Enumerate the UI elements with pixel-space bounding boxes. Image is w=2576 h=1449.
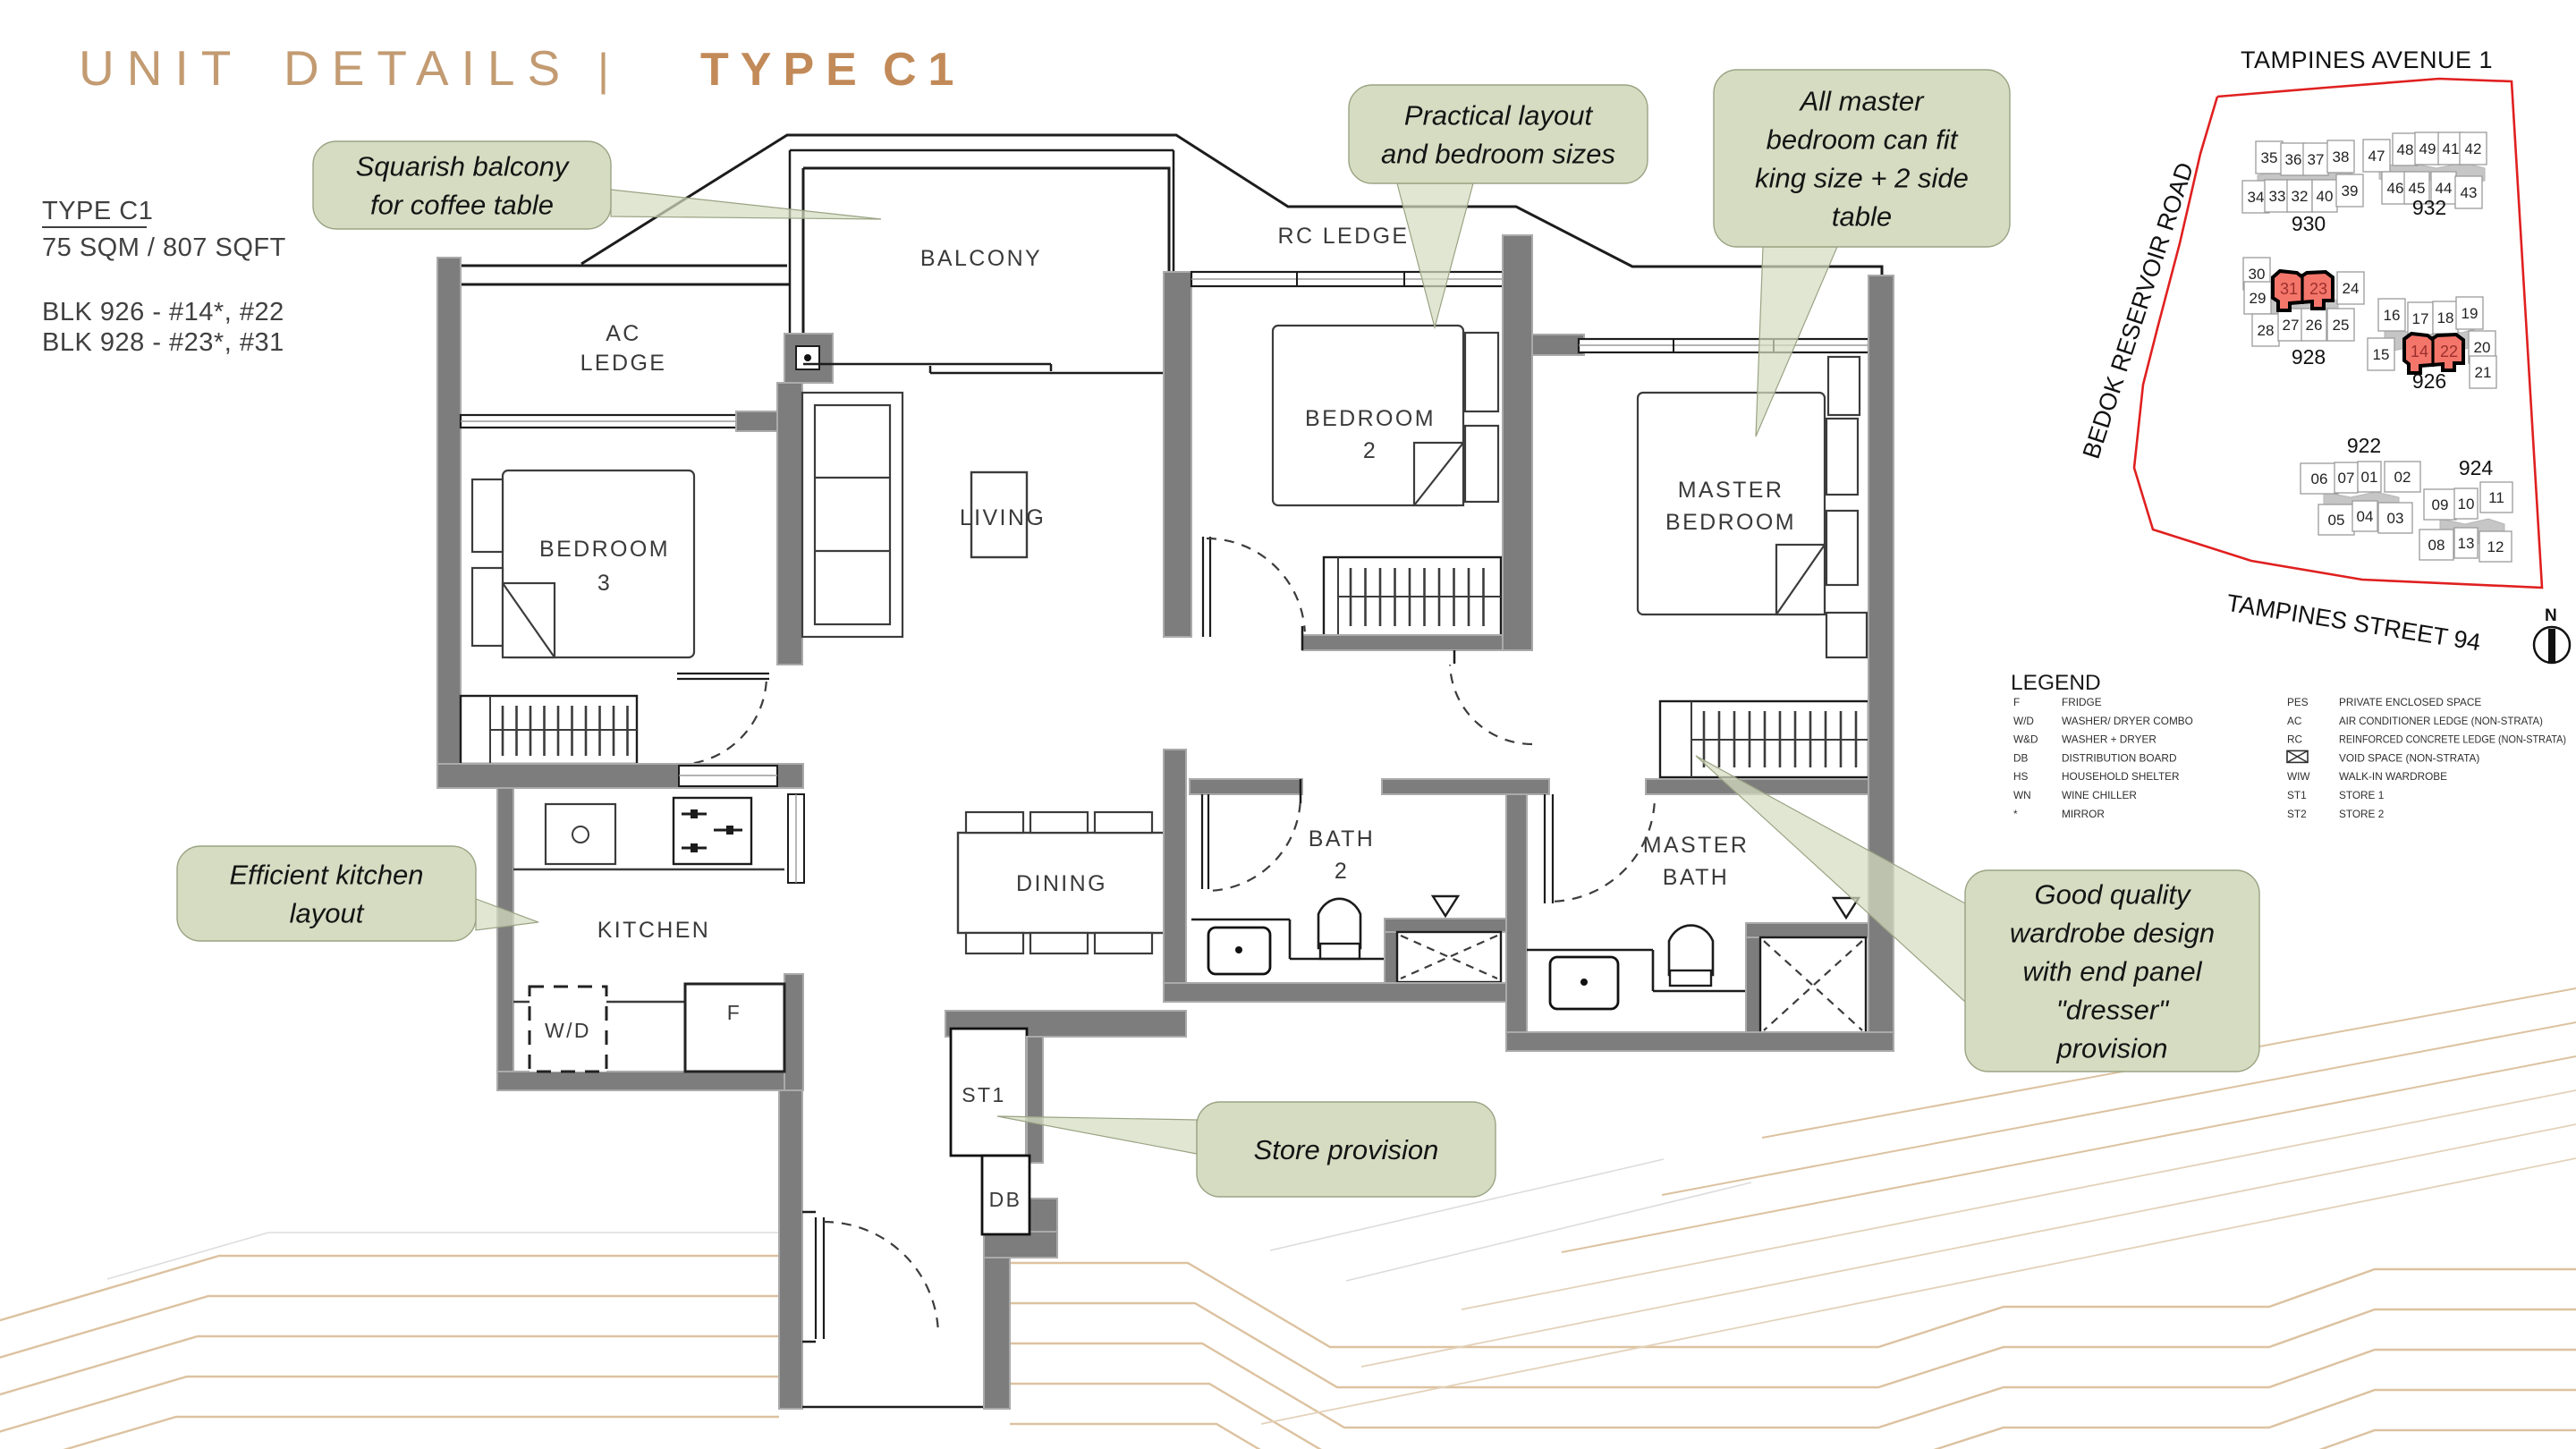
svg-text:|: | (597, 45, 609, 95)
svg-text:WN: WN (2013, 789, 2031, 801)
svg-text:Good quality: Good quality (2034, 878, 2192, 910)
svg-text:FRIDGE: FRIDGE (2062, 696, 2102, 708)
svg-text:bedroom can fit: bedroom can fit (1767, 123, 1959, 155)
svg-text:DB: DB (2013, 751, 2029, 764)
svg-text:table: table (1832, 200, 1892, 232)
svg-text:WIW: WIW (2287, 770, 2310, 783)
svg-text:BLK 926 - #14*, #22: BLK 926 - #14*, #22 (42, 298, 284, 326)
svg-text:42: 42 (2465, 140, 2482, 157)
svg-text:AIR CONDITIONER LEDGE (NON-STR: AIR CONDITIONER LEDGE (NON-STRATA) (2339, 715, 2543, 727)
svg-text:BEDROOM: BEDROOM (1665, 510, 1796, 535)
svg-text:15: 15 (2373, 346, 2390, 363)
svg-text:HOUSEHOLD SHELTER: HOUSEHOLD SHELTER (2062, 770, 2180, 783)
svg-text:38: 38 (2333, 148, 2350, 165)
svg-text:18: 18 (2437, 309, 2454, 326)
svg-text:13: 13 (2458, 535, 2475, 552)
svg-text:WASHER + DRYER: WASHER + DRYER (2062, 733, 2157, 746)
svg-text:*: * (2013, 808, 2018, 820)
svg-text:928: 928 (2292, 345, 2326, 369)
svg-text:23: 23 (2309, 280, 2327, 298)
svg-text:07: 07 (2338, 470, 2355, 487)
svg-text:Efficient kitchen: Efficient kitchen (229, 859, 423, 890)
svg-text:C1: C1 (883, 44, 965, 96)
svg-text:DINING: DINING (1016, 871, 1107, 896)
svg-text:924: 924 (2459, 456, 2494, 479)
svg-text:16: 16 (2384, 307, 2401, 324)
svg-text:All master: All master (1799, 85, 1925, 116)
svg-text:ST1: ST1 (2287, 789, 2307, 801)
svg-text:08: 08 (2428, 537, 2445, 554)
svg-text:BATH: BATH (1663, 865, 1729, 890)
svg-text:F: F (2013, 696, 2020, 708)
svg-text:2: 2 (1363, 438, 1377, 463)
svg-text:LEDGE: LEDGE (580, 351, 667, 376)
svg-text:46: 46 (2387, 180, 2404, 197)
svg-text:40: 40 (2317, 188, 2334, 205)
svg-text:king size + 2 side: king size + 2 side (1755, 162, 1969, 193)
svg-text:DETAILS: DETAILS (284, 40, 572, 96)
svg-text:28: 28 (2258, 322, 2275, 339)
svg-text:10: 10 (2458, 496, 2475, 513)
svg-text:UNIT: UNIT (79, 40, 243, 96)
svg-text:27: 27 (2283, 317, 2300, 334)
svg-text:922: 922 (2347, 434, 2381, 457)
svg-text:provision: provision (2055, 1032, 2167, 1063)
svg-text:RC LEDGE: RC LEDGE (1277, 224, 1409, 249)
svg-text:MIRROR: MIRROR (2062, 808, 2105, 820)
svg-text:Squarish balcony: Squarish balcony (356, 150, 571, 182)
svg-text:VOID SPACE (NON-STRATA): VOID SPACE (NON-STRATA) (2339, 751, 2479, 764)
svg-text:02: 02 (2394, 469, 2411, 486)
svg-text:BEDROOM: BEDROOM (539, 537, 670, 562)
svg-text:26: 26 (2306, 317, 2323, 334)
svg-text:31: 31 (2280, 280, 2298, 298)
svg-text:33: 33 (2269, 188, 2286, 205)
svg-text:RC: RC (2287, 733, 2303, 746)
svg-text:TYPE: TYPE (700, 44, 869, 96)
svg-text:TYPE C1: TYPE C1 (42, 197, 153, 225)
svg-text:41: 41 (2443, 140, 2460, 157)
svg-text:39: 39 (2342, 182, 2359, 199)
svg-text:37: 37 (2308, 151, 2325, 168)
svg-text:HS: HS (2013, 770, 2029, 783)
svg-text:REINFORCED CONCRETE LEDGE (NON: REINFORCED CONCRETE LEDGE (NON-STRATA) (2339, 733, 2566, 746)
svg-text:for coffee table: for coffee table (370, 189, 554, 220)
svg-text:29: 29 (2250, 290, 2267, 307)
svg-text:75 SQM / 807 SQFT: 75 SQM / 807 SQFT (42, 233, 286, 262)
svg-text:W&D: W&D (2013, 733, 2038, 746)
svg-text:BALCONY: BALCONY (920, 246, 1042, 271)
svg-text:48: 48 (2397, 141, 2414, 158)
svg-text:DB: DB (989, 1188, 1022, 1211)
svg-text:KITCHEN: KITCHEN (597, 918, 711, 943)
svg-text:930: 930 (2292, 212, 2326, 235)
svg-text:19: 19 (2462, 305, 2479, 322)
svg-text:DISTRIBUTION BOARD: DISTRIBUTION BOARD (2062, 751, 2176, 764)
svg-text:25: 25 (2333, 317, 2350, 334)
svg-text:WALK-IN WARDROBE: WALK-IN WARDROBE (2339, 770, 2447, 783)
svg-text:49: 49 (2419, 140, 2436, 157)
svg-text:STORE 2: STORE 2 (2339, 808, 2384, 820)
svg-text:BEDROOM: BEDROOM (1305, 406, 1436, 431)
svg-text:PES: PES (2287, 696, 2309, 708)
svg-text:Practical layout: Practical layout (1404, 99, 1594, 131)
svg-text:03: 03 (2387, 510, 2404, 527)
svg-text:11: 11 (2488, 489, 2504, 506)
svg-text:12: 12 (2487, 538, 2504, 555)
svg-text:3: 3 (597, 571, 612, 596)
svg-text:WASHER/ DRYER COMBO: WASHER/ DRYER COMBO (2062, 715, 2193, 727)
svg-text:STORE 1: STORE 1 (2339, 789, 2384, 801)
svg-text:AC: AC (2287, 715, 2302, 727)
svg-text:01: 01 (2361, 469, 2378, 486)
svg-text:2: 2 (1335, 859, 1349, 884)
svg-text:34: 34 (2248, 189, 2265, 206)
svg-text:PRIVATE ENCLOSED SPACE: PRIVATE ENCLOSED SPACE (2339, 696, 2481, 708)
svg-text:and bedroom sizes: and bedroom sizes (1381, 138, 1615, 169)
svg-text:30: 30 (2249, 266, 2266, 283)
svg-text:LEGEND: LEGEND (2011, 671, 2101, 695)
svg-text:ST2: ST2 (2287, 808, 2307, 820)
svg-text:MASTER: MASTER (1643, 833, 1750, 858)
svg-text:05: 05 (2328, 512, 2345, 529)
svg-text:AC: AC (606, 321, 641, 346)
svg-text:Store provision: Store provision (1254, 1134, 1439, 1165)
svg-text:TAMPINES AVENUE 1: TAMPINES AVENUE 1 (2241, 47, 2493, 73)
svg-text:36: 36 (2285, 151, 2302, 168)
svg-text:44: 44 (2436, 180, 2453, 197)
svg-text:06: 06 (2311, 470, 2328, 487)
svg-text:24: 24 (2343, 280, 2360, 297)
svg-text:ST1: ST1 (962, 1083, 1005, 1106)
svg-text:04: 04 (2357, 508, 2374, 525)
svg-text:WINE CHILLER: WINE CHILLER (2062, 789, 2137, 801)
svg-text:"dresser": "dresser" (2056, 994, 2170, 1025)
svg-text:932: 932 (2412, 196, 2446, 219)
svg-text:layout: layout (290, 897, 365, 928)
svg-text:BATH: BATH (1309, 826, 1375, 852)
svg-text:17: 17 (2412, 310, 2429, 327)
svg-text:MASTER: MASTER (1678, 478, 1784, 503)
svg-text:32: 32 (2292, 188, 2309, 205)
svg-text:W/D: W/D (545, 1019, 591, 1042)
svg-text:BLK 928 - #23*, #31: BLK 928 - #23*, #31 (42, 328, 284, 357)
svg-text:35: 35 (2261, 149, 2278, 166)
svg-text:F: F (727, 1001, 741, 1024)
svg-text:LIVING: LIVING (960, 505, 1046, 530)
svg-text:N: N (2545, 606, 2559, 625)
svg-text:43: 43 (2461, 184, 2478, 201)
svg-text:wardrobe design: wardrobe design (2010, 917, 2215, 948)
svg-text:with end panel: with end panel (2023, 955, 2203, 987)
svg-text:22: 22 (2440, 343, 2458, 360)
svg-text:09: 09 (2432, 496, 2449, 513)
svg-text:926: 926 (2412, 369, 2446, 393)
svg-text:W/D: W/D (2013, 715, 2034, 727)
svg-text:47: 47 (2368, 148, 2385, 165)
svg-text:14: 14 (2411, 343, 2428, 360)
svg-text:21: 21 (2475, 364, 2492, 381)
svg-text:20: 20 (2474, 339, 2491, 356)
svg-text:45: 45 (2409, 180, 2426, 197)
